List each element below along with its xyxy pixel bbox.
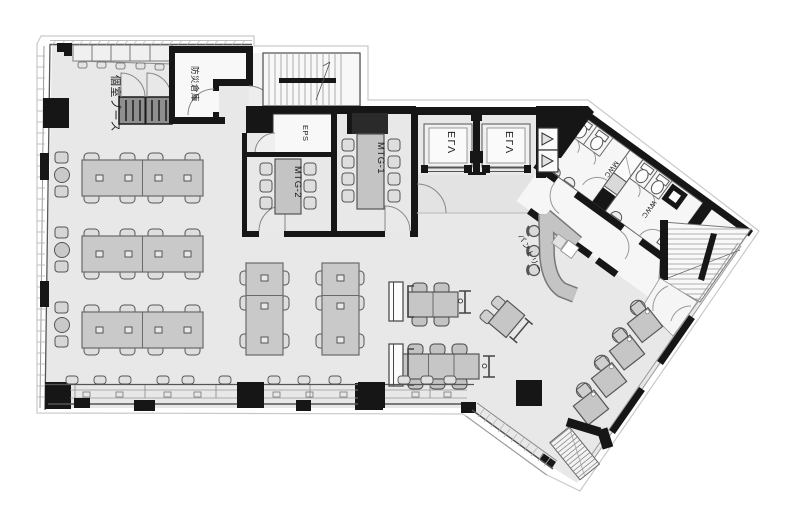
svg-text:個室ブース: 個室ブース — [109, 75, 123, 132]
svg-text:MTG-2: MTG-2 — [292, 166, 303, 198]
svg-text:EPS: EPS — [301, 125, 310, 142]
svg-text:防災倉庫: 防災倉庫 — [190, 66, 200, 102]
svg-text:MTG-1: MTG-1 — [375, 142, 386, 174]
svg-text:ELV: ELV — [504, 131, 516, 155]
svg-text:ELV: ELV — [446, 131, 458, 155]
